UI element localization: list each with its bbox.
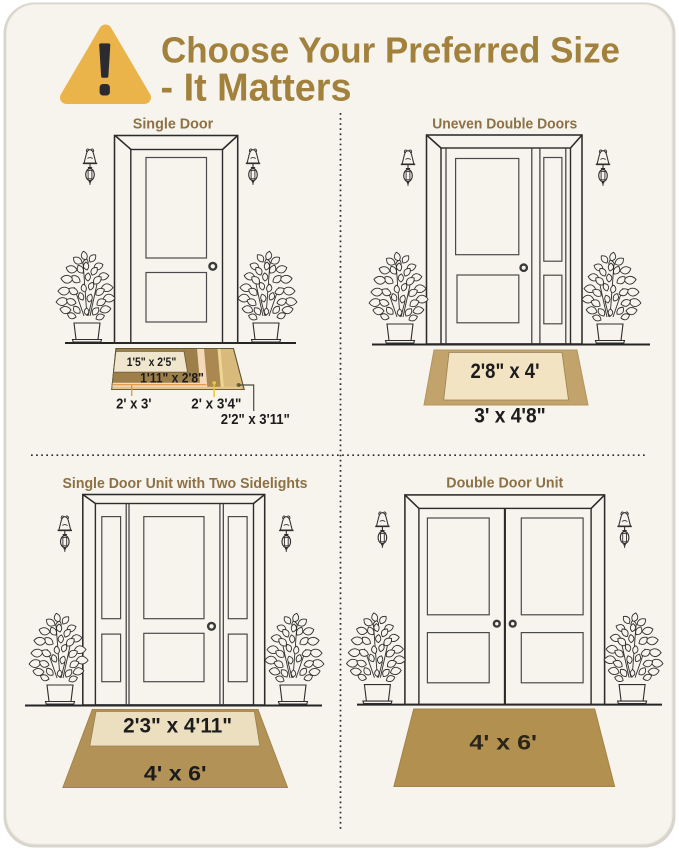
svg-text:Double Door Unit: Double Door Unit: [446, 475, 563, 492]
svg-text:Choose Your Preferred Size: Choose Your Preferred Size: [161, 30, 620, 71]
svg-text:Uneven Double Doors: Uneven Double Doors: [432, 115, 577, 132]
svg-text:2'2" x 3'11": 2'2" x 3'11": [221, 411, 290, 428]
svg-text:Single Door Unit with Two Side: Single Door Unit with Two Sidelights: [63, 476, 308, 492]
svg-text:- It Matters: - It Matters: [161, 67, 352, 110]
svg-text:1'11" x 2'8": 1'11" x 2'8": [140, 370, 204, 386]
svg-text:2'3" x 4'11": 2'3" x 4'11": [123, 715, 232, 738]
svg-text:4' x 6': 4' x 6': [469, 731, 537, 755]
svg-text:2' x 3': 2' x 3': [116, 396, 151, 413]
svg-text:1'5" x 2'5": 1'5" x 2'5": [127, 355, 177, 369]
svg-text:4' x 6': 4' x 6': [144, 762, 207, 785]
svg-text:Single Door: Single Door: [133, 115, 214, 132]
svg-text:3' x 4'8": 3' x 4'8": [474, 404, 546, 427]
svg-text:2'8" x 4': 2'8" x 4': [471, 360, 540, 383]
